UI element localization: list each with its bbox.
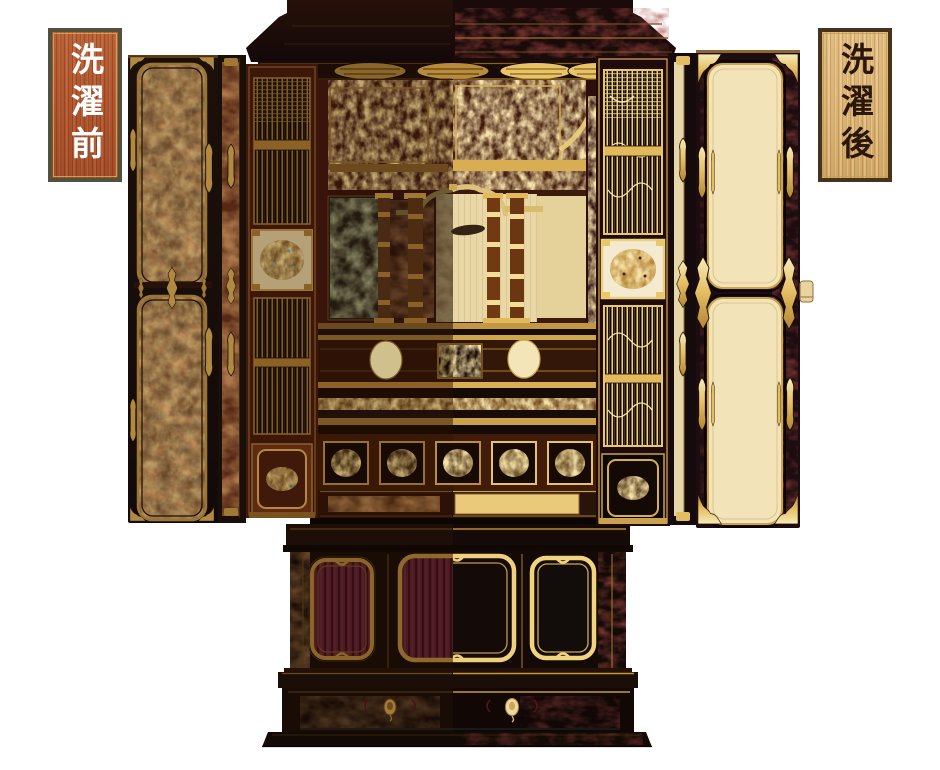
offering-mat: [508, 340, 540, 378]
photo-stage: 洗濯前 洗濯後: [0, 0, 940, 770]
center-clasp: [695, 257, 712, 330]
label-after-cleaning: 洗濯後: [818, 28, 892, 182]
door-knob: [800, 281, 813, 302]
gilded-step-face: [455, 494, 579, 514]
carved-medallion: [252, 230, 312, 290]
worn-door-panel: [138, 64, 206, 286]
worn-door-panel: [138, 296, 206, 520]
left-inner-door: [246, 64, 318, 518]
gilded-medallion: [602, 240, 664, 298]
plinth-foot: [262, 732, 652, 747]
crown-cornice: [246, 0, 676, 62]
cabinet-door-panel: [309, 557, 375, 661]
cabinet-door-panel: [400, 556, 514, 660]
lower-cabinet: [262, 524, 652, 747]
door-hinge: [205, 143, 213, 194]
carved-panel-row: [324, 442, 592, 484]
center-clasp: [166, 267, 177, 309]
door-hinge: [786, 146, 794, 199]
altar-platform: [310, 323, 606, 536]
door-hinge: [130, 398, 136, 442]
label-before-text: 洗濯前: [69, 42, 102, 168]
left-outer-door: [128, 55, 218, 523]
carved-frieze: [316, 80, 600, 192]
door-hinge: [786, 378, 794, 431]
door-hinge: [698, 378, 706, 431]
door-hinge: [205, 327, 213, 378]
right-inner-door: [596, 56, 670, 526]
right-outer-door: [695, 50, 813, 528]
lattice-panel: [254, 78, 310, 224]
gilded-lattice-panel: [604, 70, 662, 234]
center-clasp: [781, 257, 798, 330]
cabinet-door-panel: [532, 558, 594, 658]
lattice-panel: [254, 298, 310, 434]
butsudan-photo: [0, 0, 940, 770]
gold-leaf-panel: [705, 295, 785, 527]
gilded-base-panel: [602, 454, 664, 522]
door-hinge: [698, 146, 706, 199]
gilded-lattice-panel: [604, 306, 662, 446]
gold-leaf-panel: [705, 61, 785, 291]
door-hinge: [130, 128, 136, 172]
label-before-cleaning: 洗濯前: [48, 28, 122, 182]
offering-mat: [370, 341, 402, 379]
right-door-fold: [670, 53, 696, 525]
label-after-text: 洗濯後: [839, 42, 872, 168]
left-door-fold: [216, 55, 246, 523]
carved-base-panel: [252, 444, 312, 514]
drawer-band: [282, 688, 634, 732]
